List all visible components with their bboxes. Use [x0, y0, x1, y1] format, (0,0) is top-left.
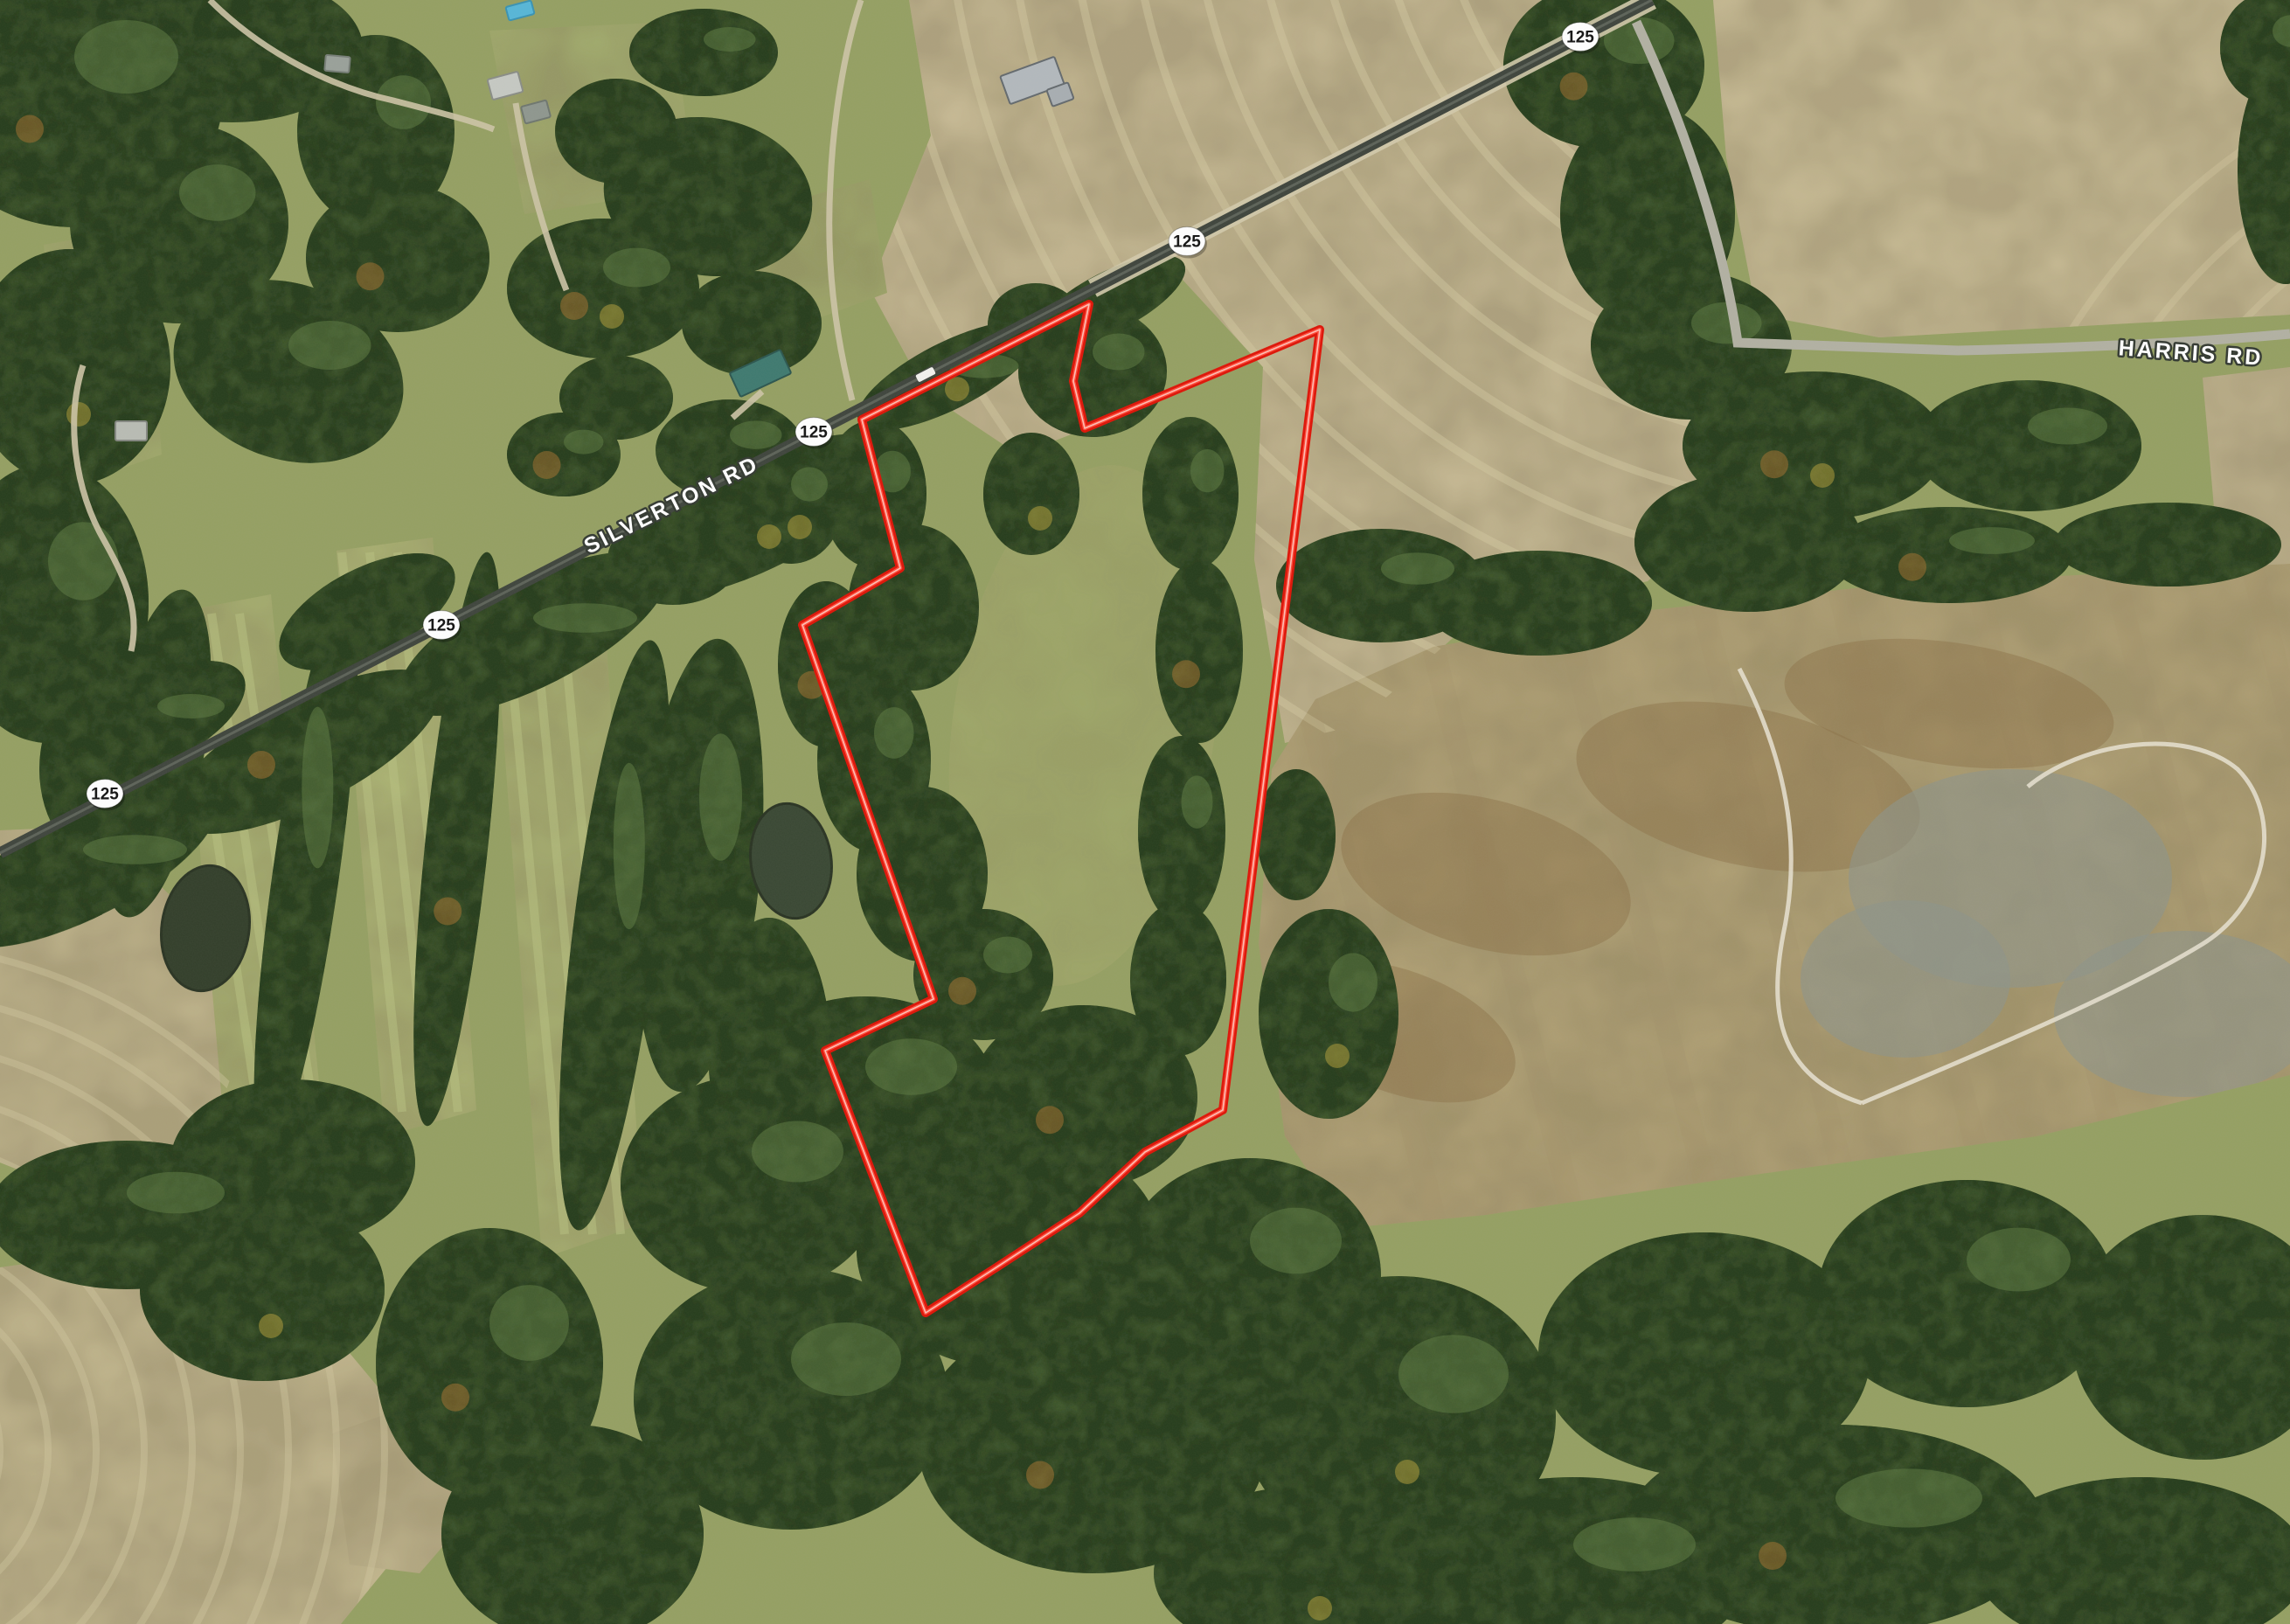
satellite-map[interactable]: SILVERTON RDHARRIS RD125125125125125 — [0, 0, 2290, 1624]
grain-overlay — [0, 0, 2290, 1624]
map-viewport[interactable]: SILVERTON RDHARRIS RD125125125125125 — [0, 0, 2290, 1624]
